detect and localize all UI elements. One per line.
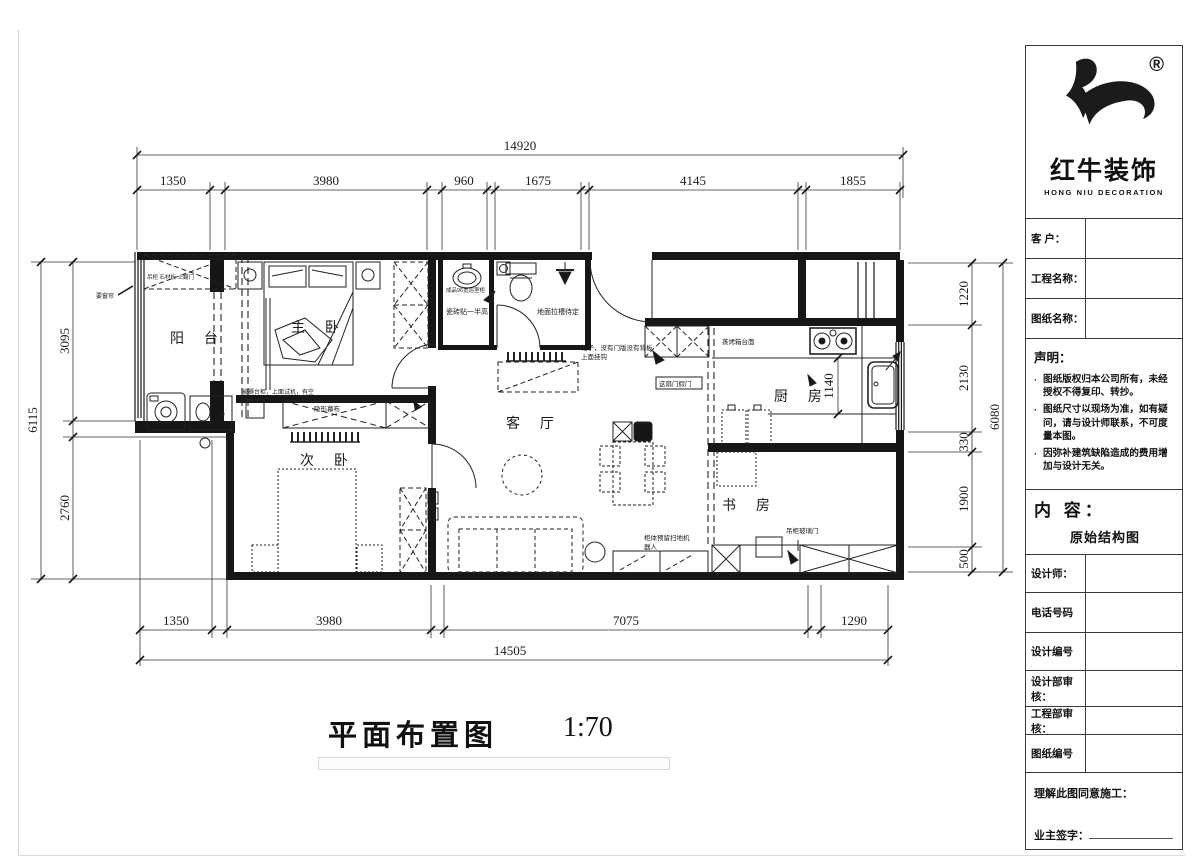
field-project: 工程名称： bbox=[1026, 259, 1182, 299]
room-label-master: 主 卧 bbox=[291, 319, 347, 335]
entry-fixtures bbox=[645, 326, 709, 389]
room-label-secondary: 次 卧 bbox=[300, 452, 356, 468]
content-label: 内 容： bbox=[1034, 496, 1176, 521]
secondary-bedroom-furniture bbox=[252, 401, 438, 573]
dim-top-total: 14920 bbox=[504, 138, 537, 153]
dim-top-3: 1675 bbox=[525, 173, 551, 188]
note-fake-door: 这扇门假门 bbox=[659, 379, 692, 388]
dim-right-1: 2130 bbox=[956, 365, 971, 391]
room-label-study: 书 房 bbox=[722, 497, 778, 513]
field-customer: 客 户： bbox=[1026, 219, 1182, 259]
field-phone: 电话号码 bbox=[1026, 593, 1182, 633]
dim-right-0: 1220 bbox=[956, 281, 971, 307]
content-section: 内 容： 原始结构图 bbox=[1026, 490, 1182, 555]
brand-logo-cell: ® 红牛装饰 HONG NIU DECORATION bbox=[1026, 46, 1182, 219]
statement-section: 声明： · 图纸版权归本公司所有，未经授权不得复印、转抄。 · 图纸尺寸以现场为… bbox=[1026, 339, 1182, 490]
bathroom-fixtures bbox=[453, 262, 574, 303]
field-design-review-label: 设计部审核： bbox=[1026, 671, 1086, 706]
field-designer: 设计师： bbox=[1026, 555, 1182, 593]
note-master-quilt: 被褥台柜，上面试机，有空 bbox=[242, 388, 314, 396]
room-label-living: 客 厅 bbox=[506, 415, 562, 431]
dim-top-0: 1350 bbox=[160, 173, 186, 188]
dimension-lines bbox=[31, 147, 1013, 666]
bullet-icon: · bbox=[1034, 447, 1043, 473]
dim-right-total: 6080 bbox=[987, 404, 1002, 430]
dim-right-4: 500 bbox=[956, 549, 971, 569]
dim-top-2: 960 bbox=[454, 173, 474, 188]
dim-right-3: 1900 bbox=[956, 486, 971, 512]
statement-title: 声明： bbox=[1034, 347, 1176, 366]
field-eng-review-label: 工程部审核： bbox=[1026, 707, 1086, 734]
bullet-icon: · bbox=[1034, 373, 1043, 399]
note-curtain: 要窗帘 bbox=[96, 292, 114, 300]
owner-sign-line bbox=[1089, 828, 1173, 839]
statement-item: · 因弥补建筑缺陷造成的费用增加与设计无关。 bbox=[1034, 447, 1176, 473]
note-balcony-cabinet: 吊柜 石材板 上翻门 bbox=[147, 273, 194, 281]
note-hook-1: 柜子，没有门版没有背板 bbox=[581, 343, 653, 352]
field-phone-label: 电话号码 bbox=[1026, 593, 1086, 632]
dim-bottom-2: 7075 bbox=[613, 613, 639, 628]
agree-label: 理解此图同意施工： bbox=[1034, 785, 1176, 801]
owner-sign-label: 业主签字： bbox=[1034, 830, 1089, 842]
field-design-review: 设计部审核： bbox=[1026, 671, 1182, 707]
balcony-furniture bbox=[144, 255, 270, 448]
dim-left-total: 6115 bbox=[25, 407, 40, 433]
note-hook-2: 上面挂钩 bbox=[581, 352, 608, 361]
dim-right-2: 330 bbox=[956, 432, 971, 452]
footer-section: 理解此图同意施工： 业主签字： bbox=[1026, 773, 1182, 843]
statement-item: · 图纸版权归本公司所有，未经授权不得复印、转抄。 bbox=[1034, 373, 1176, 399]
content-value: 原始结构图 bbox=[1034, 527, 1176, 546]
note-oven: 蒸烤箱台面 bbox=[722, 337, 755, 346]
bullet-icon: · bbox=[1034, 403, 1043, 443]
note-basin: 成品96宽浴室柜 bbox=[446, 286, 486, 294]
title-block: ® 红牛装饰 HONG NIU DECORATION 客 户： 工程名称： 图纸… bbox=[1025, 45, 1183, 850]
annotations: 要窗帘 吊柜 石材板 上翻门 被褥台柜，上面试机，有空 成品96宽浴室柜 瓷砖贴… bbox=[96, 273, 819, 551]
note-screen: 隐形幕布 bbox=[314, 404, 341, 413]
dim-top-1: 3980 bbox=[313, 173, 339, 188]
dim-kitchen-depth: 1140 bbox=[821, 373, 836, 399]
dim-top-5: 1855 bbox=[840, 173, 866, 188]
field-sheet-no: 图纸编号 bbox=[1026, 735, 1182, 773]
field-project-label: 工程名称： bbox=[1026, 259, 1086, 298]
statement-item-text: 图纸版权归本公司所有，未经授权不得复印、转抄。 bbox=[1043, 373, 1176, 399]
drawing-title-underbar bbox=[318, 757, 670, 770]
brand-name: 红牛装饰 bbox=[1026, 151, 1182, 187]
field-design-no: 设计编号 bbox=[1026, 633, 1182, 671]
dim-top-4: 4145 bbox=[680, 173, 706, 188]
statement-item: · 图纸尺寸以现场为准，如有疑问，请与设计师联系，不可度量本图。 bbox=[1034, 403, 1176, 443]
owner-sign-row: 业主签字： bbox=[1034, 827, 1176, 843]
dim-bottom-0: 1350 bbox=[163, 613, 189, 628]
note-tile: 瓷砖贴一半高 bbox=[446, 307, 488, 316]
dim-left-1: 2760 bbox=[57, 495, 72, 521]
field-designer-label: 设计师： bbox=[1026, 555, 1086, 592]
field-sheet-no-label: 图纸编号 bbox=[1026, 735, 1086, 772]
dim-left-0: 3095 bbox=[57, 328, 72, 354]
field-design-no-label: 设计编号 bbox=[1026, 633, 1086, 670]
field-sheet-name: 图纸名称： bbox=[1026, 299, 1182, 339]
statement-item-text: 因弥补建筑缺陷造成的费用增加与设计无关。 bbox=[1043, 447, 1176, 473]
note-floor-groove: 地面拉槽待定 bbox=[537, 307, 579, 316]
registered-mark: ® bbox=[1149, 54, 1164, 77]
dim-bottom-3: 1290 bbox=[841, 613, 867, 628]
bull-logo-icon bbox=[1045, 54, 1163, 146]
statement-item-text: 图纸尺寸以现场为准，如有疑问，请与设计师联系，不可度量本图。 bbox=[1043, 403, 1176, 443]
note-robot-2: 器人 bbox=[644, 543, 658, 551]
field-customer-label: 客 户： bbox=[1026, 219, 1086, 258]
note-glass-door: 吊柜玻璃门 bbox=[786, 526, 819, 535]
dim-bottom-1: 3980 bbox=[316, 613, 342, 628]
brand-name-en: HONG NIU DECORATION bbox=[1026, 188, 1182, 197]
field-sheet-name-label: 图纸名称： bbox=[1026, 299, 1086, 338]
field-eng-review: 工程部审核： bbox=[1026, 707, 1182, 735]
dim-bottom-total: 14505 bbox=[494, 643, 527, 658]
drawing-title: 平面布置图 bbox=[328, 712, 498, 754]
room-label-balcony: 阳 台 bbox=[170, 330, 226, 346]
note-robot-1: 柜体预留扫地机 bbox=[644, 533, 690, 542]
drawing-scale: 1:70 bbox=[563, 712, 613, 744]
